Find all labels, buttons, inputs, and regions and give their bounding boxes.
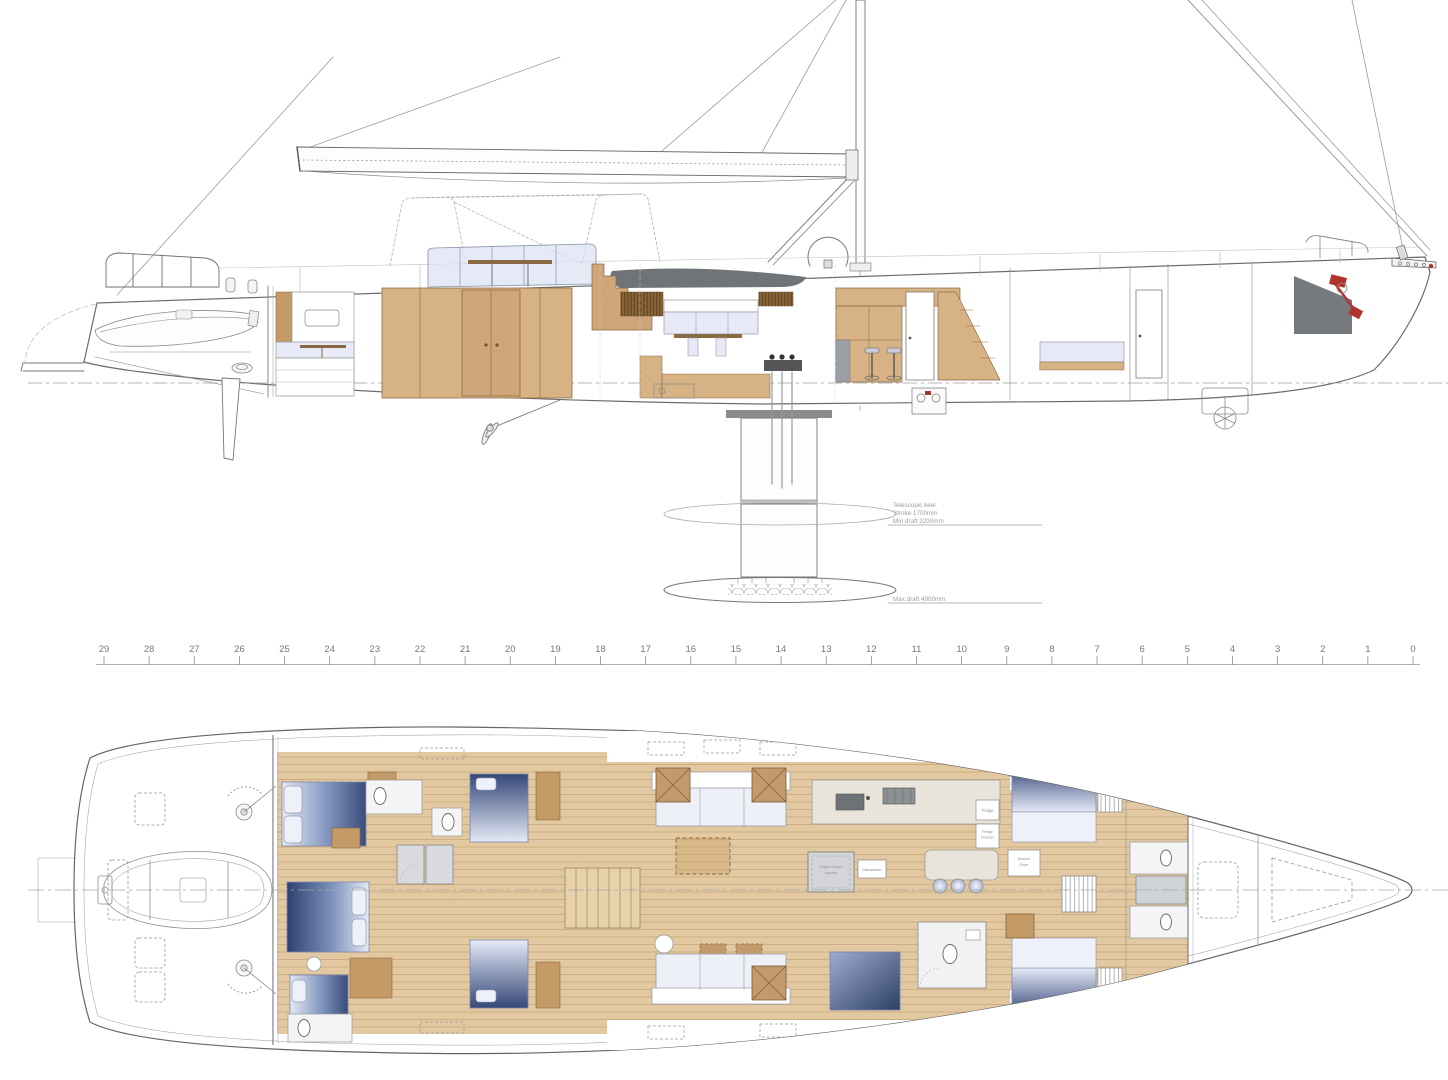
- plan-companionway-stairs: [565, 868, 640, 928]
- engine-room-access: Engine Room Access: [808, 852, 854, 892]
- deck-ladder: [1062, 876, 1096, 912]
- galley-appliance-column: [836, 340, 850, 382]
- keel-trunk-upper: [741, 418, 817, 502]
- bow-pulpit: [1306, 236, 1368, 252]
- engine-hatch-panel: [830, 952, 900, 1010]
- pillow: [352, 888, 366, 915]
- fridge-freezer-label-1: Fridge: [982, 830, 993, 834]
- slatted-locker: [1098, 770, 1122, 812]
- wardrobe-joinery: [382, 288, 572, 398]
- ruler-station-label: 6: [1140, 644, 1145, 655]
- keel-note-line1: Telescopic keel: [893, 502, 936, 509]
- ruler-station-label: 4: [1230, 644, 1235, 655]
- ruler-station-label: 7: [1094, 644, 1099, 655]
- lazyjack-line: [640, 0, 836, 170]
- stern-pushpit: [106, 253, 219, 287]
- bow-fitting-red: [1429, 264, 1433, 268]
- day-head: [918, 922, 986, 988]
- mast-collar: [850, 263, 871, 271]
- crew-locker: [1006, 914, 1034, 938]
- engine-room-label-1: Engine Room: [819, 865, 842, 869]
- saloon-table: [674, 334, 742, 338]
- ruler-station-label: 14: [776, 644, 787, 655]
- fridge-unit: Fridge: [976, 800, 999, 820]
- keel-bulb-lead-stack: [728, 584, 832, 595]
- crew-bunk-port: [1012, 766, 1096, 812]
- keel-root-flange: [726, 410, 832, 418]
- pillow: [352, 919, 366, 946]
- toilet: [374, 788, 386, 805]
- coffee-table-dashed: [676, 838, 730, 874]
- ruler-station-label: 29: [99, 644, 110, 655]
- side-deck-top: [607, 731, 1010, 762]
- ruler-station-label: 25: [279, 644, 290, 655]
- galley-sink: [836, 794, 864, 810]
- backstay-line: [117, 57, 333, 295]
- aft-cabin-section: [276, 292, 354, 396]
- slatted-locker: [1098, 968, 1122, 1010]
- toilet: [943, 945, 957, 964]
- keel-note-line3: Min draft 3200mm: [893, 518, 944, 525]
- aft-guest-cabin-port: [282, 782, 366, 848]
- mast: [856, 0, 865, 266]
- crew-bunk-stbd: [1012, 968, 1096, 1014]
- bar-stool: [951, 879, 965, 893]
- door-handle: [484, 343, 487, 346]
- gooseneck-fitting: [846, 150, 858, 180]
- station-ruler: 2928272625242322212019181716151413121110…: [96, 644, 1420, 665]
- ruler-station-label: 2: [1320, 644, 1325, 655]
- ruler-station-label: 11: [912, 644, 922, 655]
- ruler-station-label: 10: [956, 644, 967, 655]
- pillow: [284, 786, 302, 813]
- toilet: [1161, 914, 1172, 930]
- ruler-station-label: 19: [550, 644, 561, 655]
- dishwasher-label: Dishwasher: [862, 868, 883, 872]
- ruler-station-label: 24: [324, 644, 335, 655]
- boom-vang-line: [773, 181, 854, 265]
- pillow: [284, 816, 302, 843]
- cockpit-table: [468, 260, 552, 264]
- aft-settee: [276, 342, 354, 358]
- bar-stool: [933, 879, 947, 893]
- ruler-station-label: 17: [640, 644, 651, 655]
- bar-stool: [969, 879, 983, 893]
- swim-platform: [21, 363, 84, 371]
- lazyjack-line: [750, 0, 846, 174]
- owner-cabin: [287, 882, 369, 952]
- keel-fin-lower: [741, 504, 817, 577]
- plan-view: Fridge Fridge Freezer Dishwasher Engine …: [28, 727, 1448, 1054]
- shower-stall: [397, 845, 424, 884]
- ruler-station-label: 16: [686, 644, 697, 655]
- ruler-station-label: 3: [1275, 644, 1280, 655]
- transom-door-swing-arc: [25, 304, 96, 361]
- pillow: [292, 980, 306, 1002]
- engine-room-label-2: Access: [825, 871, 837, 875]
- ruler-station-label: 5: [1185, 644, 1190, 655]
- forestay-line: [1188, 0, 1427, 256]
- ruler-station-label: 15: [731, 644, 742, 655]
- ruler-station-label: 20: [505, 644, 516, 655]
- side-table-round: [655, 935, 673, 953]
- ruler-station-label: 9: [1004, 644, 1009, 655]
- steering-wheel: [808, 237, 848, 268]
- hatch-table: [752, 768, 786, 802]
- door-handle: [495, 343, 498, 346]
- toilet: [1161, 850, 1172, 866]
- ruler-station-label: 8: [1049, 644, 1054, 655]
- fridge-label: Fridge: [982, 808, 995, 813]
- washer-label-1: Washer: [1018, 857, 1032, 861]
- wardrobe: [536, 962, 560, 1008]
- dishwasher-unit: Dishwasher: [858, 860, 886, 878]
- cabin-door: [906, 292, 934, 380]
- rudder-blade: [222, 378, 240, 460]
- fridge-freezer-unit: Fridge Freezer: [976, 824, 999, 848]
- ruler-station-label: 28: [144, 644, 155, 655]
- shower-stall: [426, 845, 453, 884]
- wardrobe: [350, 958, 392, 998]
- toilet: [298, 1020, 310, 1037]
- washer-dryer-unit: Washer Dryer: [1008, 850, 1040, 876]
- runner-stay-line: [302, 57, 560, 150]
- side-deck-bottom: [607, 1020, 1010, 1050]
- stool: [307, 957, 321, 971]
- slatted-vent: [759, 292, 793, 306]
- hatch-table: [656, 768, 690, 802]
- ruler-station-label: 22: [415, 644, 426, 655]
- ruler-station-label: 13: [821, 644, 832, 655]
- ruler-station-label: 12: [866, 644, 877, 655]
- pillow: [476, 990, 496, 1002]
- deck-winches: [226, 278, 257, 293]
- ruler-station-label: 21: [460, 644, 471, 655]
- inner-forestay-line: [1352, 0, 1404, 254]
- ruler-station-label: 1: [1365, 644, 1370, 655]
- keel-note-line2: Stroke 1700mm: [893, 510, 937, 517]
- hatch-table: [752, 966, 786, 1000]
- galley-stove: [883, 788, 915, 804]
- cabin-door: [1136, 290, 1162, 378]
- slatted-vent: [621, 292, 663, 316]
- pillow: [476, 778, 496, 790]
- ruler-station-label: 26: [234, 644, 245, 655]
- fixture: [1128, 984, 1138, 992]
- ruler-marks: 2928272625242322212019181716151413121110…: [99, 644, 1416, 665]
- plan-interior: Fridge Fridge Freezer Dishwasher Engine …: [98, 731, 1352, 1050]
- washer-label-2: Dryer: [1019, 863, 1029, 867]
- fridge-freezer-label-2: Freezer: [981, 836, 995, 840]
- ruler-station-label: 18: [595, 644, 606, 655]
- ruler-station-label: 27: [189, 644, 200, 655]
- sink: [966, 930, 980, 940]
- seat: [332, 828, 360, 848]
- max-draft-note: Max draft 4900mm: [893, 596, 946, 603]
- wardrobe: [536, 772, 560, 820]
- boom: [297, 147, 858, 183]
- boom-vang-line: [768, 176, 850, 262]
- yacht-general-arrangement: Telescopic keel Stroke 1700mm Min draft …: [0, 0, 1448, 1080]
- porthole: [305, 310, 339, 326]
- coachroof-window-band: [610, 269, 806, 288]
- keel-ram-block: [764, 360, 802, 371]
- propeller: [480, 400, 560, 445]
- keel-annotations: Telescopic keel Stroke 1700mm Min draft …: [888, 502, 1042, 603]
- ruler-station-label: 23: [370, 644, 381, 655]
- profile-view: Telescopic keel Stroke 1700mm Min draft …: [21, 0, 1448, 603]
- ruler-station-label: 0: [1410, 644, 1415, 655]
- deck-saloon-glazing: [428, 244, 596, 287]
- drawing-sheet: Telescopic keel Stroke 1700mm Min draft …: [0, 0, 1448, 1080]
- saloon-sofa: [664, 312, 758, 334]
- fixture: [1128, 788, 1138, 796]
- toilet: [442, 814, 454, 831]
